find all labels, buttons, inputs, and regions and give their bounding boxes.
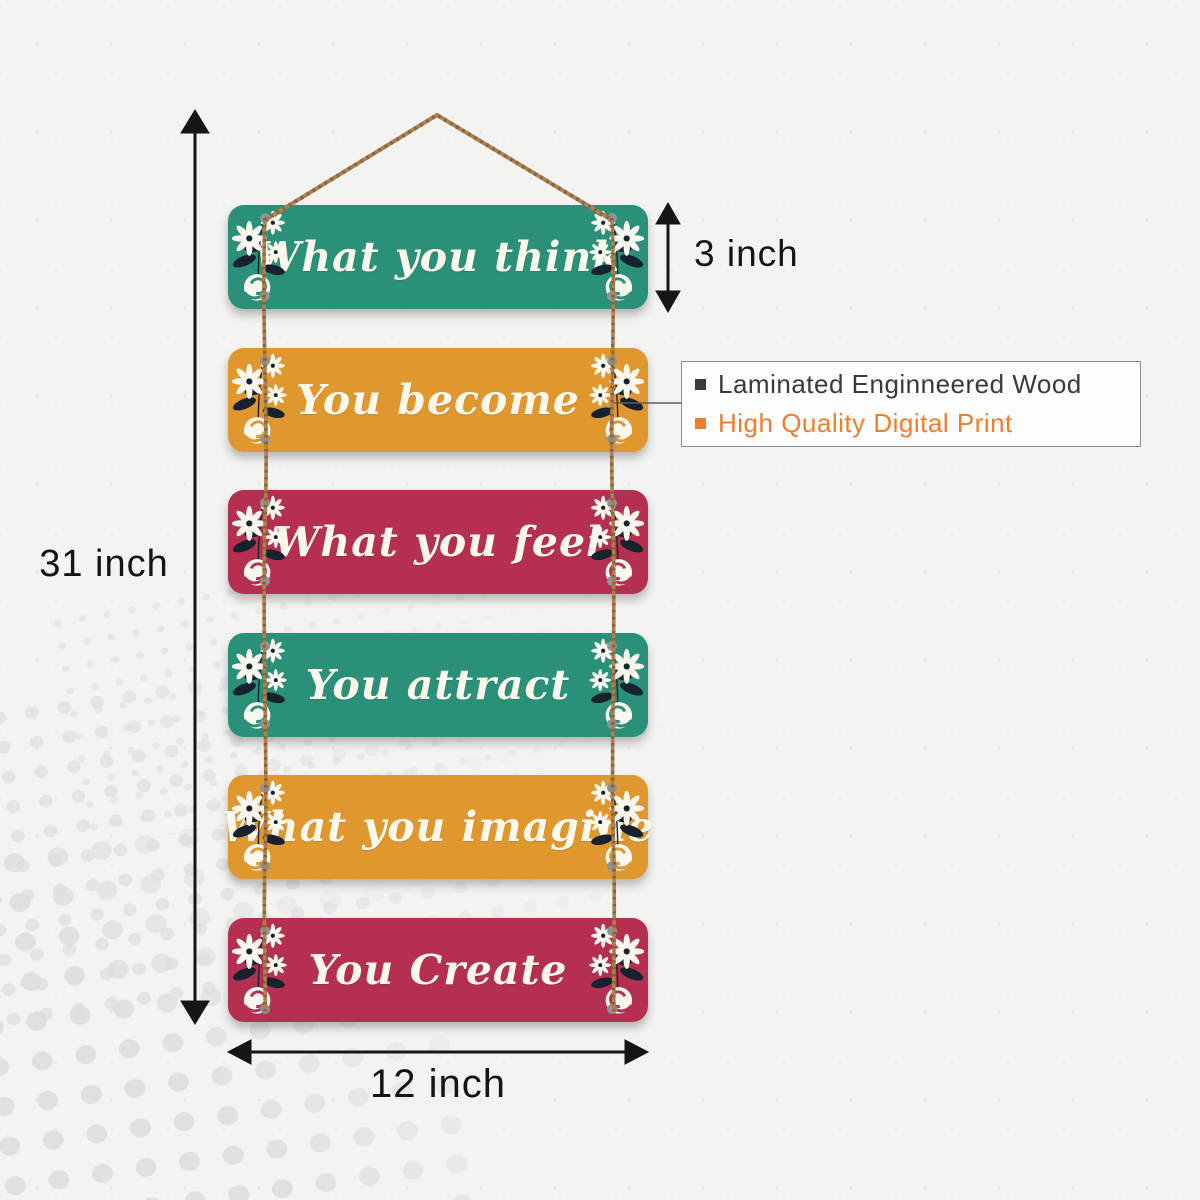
plank: What you feel: [228, 490, 648, 594]
flower-decoration-icon: [232, 352, 296, 450]
callout-item-label: High Quality Digital Print: [718, 408, 1013, 439]
callout-item: High Quality Digital Print: [695, 408, 1140, 439]
plank: You become: [228, 348, 648, 452]
flower-decoration-icon: [580, 637, 644, 735]
flower-decoration-icon: [232, 637, 296, 735]
callout-item-label: Laminated Enginneered Wood: [718, 369, 1082, 400]
callout-item: Laminated Enginneered Wood: [695, 369, 1140, 400]
plank-label: You become: [296, 376, 580, 424]
plank-height-dimension-arrow: [656, 203, 680, 312]
flower-decoration-icon: [580, 779, 644, 877]
plank: You attract: [228, 633, 648, 737]
flower-decoration-icon: [232, 779, 296, 877]
flower-decoration-icon: [232, 922, 296, 1020]
product-image: What you think You become: [0, 0, 1200, 1200]
width-dimension-arrow: [228, 1040, 648, 1064]
flower-decoration-icon: [580, 209, 644, 307]
flower-decoration-icon: [580, 494, 644, 592]
height-dimension-arrow: [181, 110, 209, 1024]
plank-label: What you think: [254, 233, 621, 281]
flower-decoration-icon: [580, 922, 644, 1020]
square-bullet-icon: [695, 418, 706, 429]
height-dimension-label: 31 inch: [28, 543, 180, 586]
plank: What you think: [228, 205, 648, 309]
width-dimension-label: 12 inch: [228, 1062, 648, 1107]
plank-label: You attract: [306, 661, 571, 709]
material-callout-box: Laminated Enginneered Wood High Quality …: [681, 361, 1141, 447]
flower-decoration-icon: [580, 352, 644, 450]
plank-holes: [260, 213, 617, 1014]
square-bullet-icon: [695, 379, 706, 390]
flower-decoration-icon: [232, 209, 296, 307]
plank-label: You Create: [308, 946, 567, 994]
plank: You Create: [228, 918, 648, 1022]
plank-label: What you feel: [273, 518, 602, 566]
plank: What you imagine: [228, 775, 648, 879]
flower-decoration-icon: [232, 494, 296, 592]
plank-height-dimension-label: 3 inch: [694, 233, 799, 275]
